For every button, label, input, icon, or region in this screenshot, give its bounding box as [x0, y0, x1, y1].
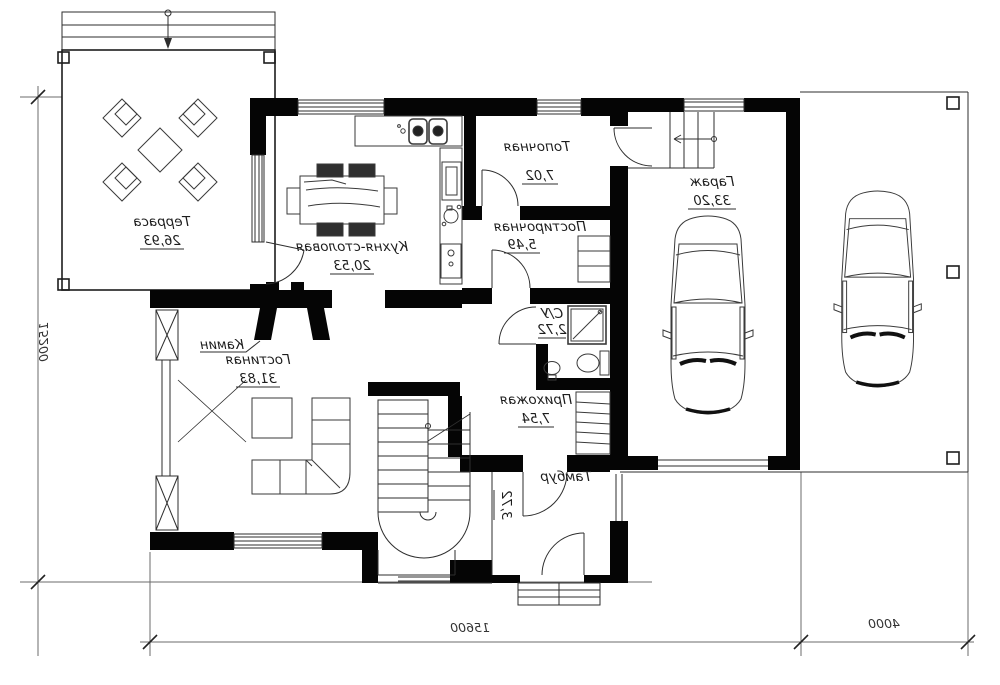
living-area-label: 31,83 [239, 372, 276, 387]
slope-arrow-icon [164, 38, 172, 49]
terrace-post [264, 52, 275, 63]
door-laundry [492, 250, 530, 288]
car-in-carport [834, 191, 921, 387]
hall-wardrobe [576, 392, 610, 454]
car-in-garage [663, 216, 753, 414]
living-furniture [252, 398, 350, 494]
window [537, 100, 581, 114]
left-dimension-label: 15200 [36, 322, 51, 362]
garage-area-label: 33,20 [693, 194, 730, 209]
window [234, 534, 322, 548]
door-boiler [482, 170, 518, 206]
stove [398, 119, 447, 144]
garage-name-label: Гараж [689, 174, 735, 190]
fireplace-label: Камин [200, 338, 244, 353]
floor-plan-drawing: Терраса 26,93 Кухня-столовая 20,53 Топоч… [0, 0, 1000, 685]
laundry-area-label: 5,49 [508, 238, 537, 253]
carport-post [947, 266, 959, 278]
kitchen-name-label: Кухня-столовая [296, 239, 408, 255]
dining-set [287, 164, 397, 236]
right-dimension-label: 4000 [868, 616, 900, 631]
shower [568, 306, 606, 344]
walls [150, 98, 800, 583]
doors [266, 128, 652, 575]
laundry-name-label: Постирочная [494, 219, 587, 235]
bottom-dimension-label: 15600 [450, 620, 490, 635]
garage-door [658, 460, 768, 466]
door-garage-porch [614, 128, 652, 166]
hall-area-label: 7,54 [522, 412, 551, 427]
window [252, 155, 264, 242]
laundry-shelves [578, 236, 610, 282]
terrace-name-label: Терраса [133, 214, 191, 230]
toilet [577, 351, 609, 375]
kitchen-sink [442, 205, 461, 226]
entrance-steps [518, 583, 600, 605]
fridge [442, 162, 461, 200]
tambour-area-label: 3,72 [498, 491, 513, 520]
windows [234, 99, 744, 581]
boiler-area-label: 7,02 [526, 169, 555, 184]
kitchen-area-label: 20,53 [333, 259, 370, 274]
boiler-name-label: Топочная [504, 139, 571, 155]
terrace-area-label: 26,93 [143, 234, 180, 249]
dishwasher [441, 244, 461, 278]
window [298, 100, 384, 114]
dimension-lines [20, 86, 975, 656]
window [398, 577, 450, 581]
storage [576, 236, 610, 454]
terrace-table-set [103, 99, 217, 201]
dimension-labels: 15200 15600 4000 [36, 322, 900, 635]
garage-steps [670, 112, 717, 168]
tambour-name-label: Тамбур [540, 469, 592, 485]
window [616, 474, 622, 521]
hall-name-label: Прихожая [500, 392, 572, 408]
floor-plan-page: Терраса 26,93 Кухня-столовая 20,53 Топоч… [0, 0, 1000, 685]
door-bathroom [499, 307, 536, 344]
wc-name-label: С/У [540, 306, 563, 322]
carport-post [947, 97, 959, 109]
coffee-table [252, 398, 292, 438]
terrace-steps [62, 10, 275, 50]
window [684, 99, 744, 111]
wc-area-label: 2,72 [538, 323, 567, 338]
living-name-label: Гостиная [225, 352, 290, 368]
door-entrance [542, 533, 584, 575]
carport-post [947, 452, 959, 464]
terrace-post [58, 52, 69, 63]
terrace-post [58, 279, 69, 290]
